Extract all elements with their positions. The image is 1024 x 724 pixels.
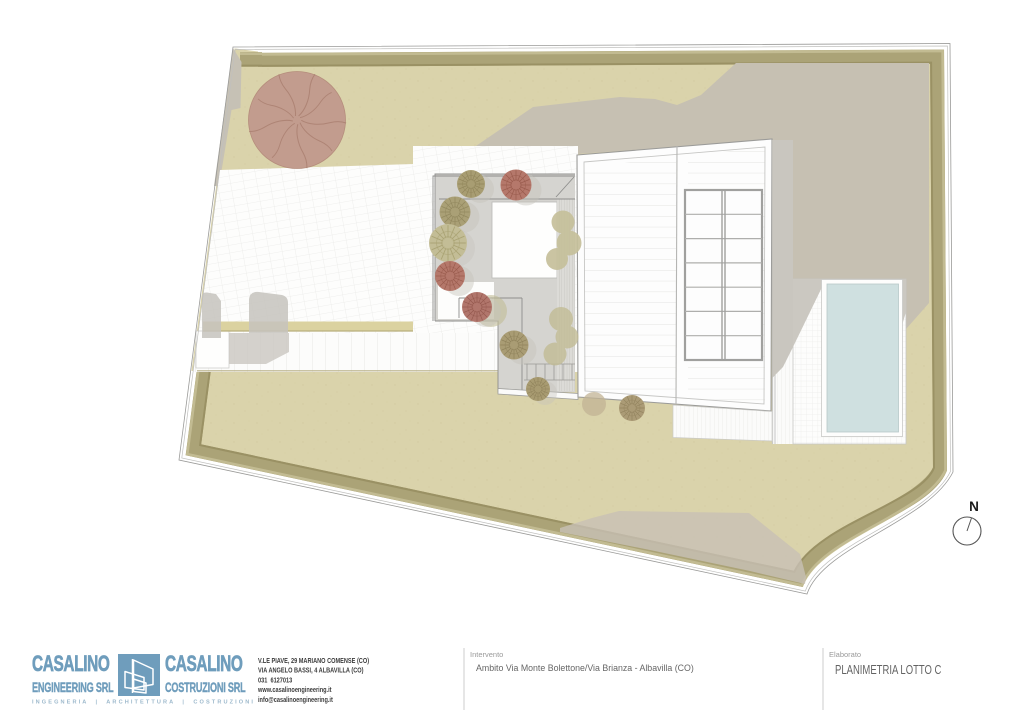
svg-text:VIA ANGELO BASSI, 4 ALBAVILLA: VIA ANGELO BASSI, 4 ALBAVILLA (CO) <box>258 667 363 675</box>
svg-text:031 6127013: 031 6127013 <box>258 677 293 685</box>
svg-text:COSTRUZIONI SRL: COSTRUZIONI SRL <box>165 680 246 695</box>
svg-text:INGEGNERIA | ARCHITETTURA |: INGEGNERIA | ARCHITETTURA | COSTRUZIONI <box>32 700 255 706</box>
svg-text:Elaborato: Elaborato <box>829 650 861 659</box>
svg-text:V.LE PIAVE, 29 MARIANO COMENSE: V.LE PIAVE, 29 MARIANO COMENSE (CO) <box>258 657 369 665</box>
svg-text:N: N <box>969 499 979 514</box>
svg-text:CASALINO: CASALINO <box>32 652 110 676</box>
svg-text:CASALINO: CASALINO <box>165 652 243 676</box>
svg-text:Intervento: Intervento <box>470 650 503 659</box>
svg-text:Ambito Via Monte Bolettone/Via: Ambito Via Monte Bolettone/Via Brianza -… <box>476 663 694 673</box>
svg-text:info@casalinoengineering.it: info@casalinoengineering.it <box>258 696 334 704</box>
svg-text:PLANIMETRIA LOTTO C: PLANIMETRIA LOTTO C <box>835 664 941 678</box>
svg-text:ENGINEERING SRL: ENGINEERING SRL <box>32 680 114 695</box>
svg-text:www.casalinoengineering.it: www.casalinoengineering.it <box>257 687 332 695</box>
